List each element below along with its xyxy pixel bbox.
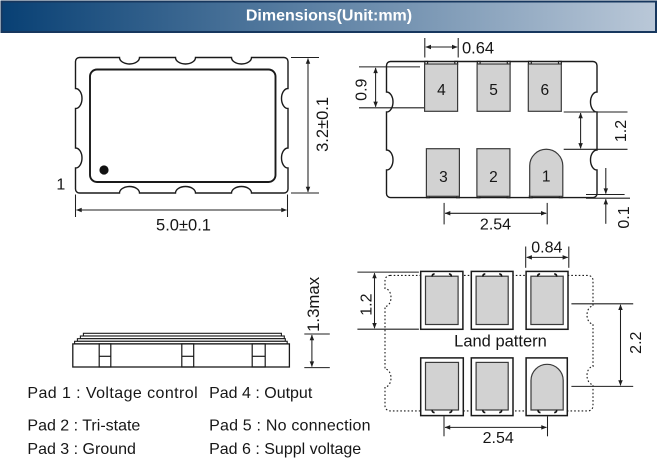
svg-text:Pad 2 : Tri-state: Pad 2 : Tri-state bbox=[27, 417, 140, 434]
svg-text:5: 5 bbox=[489, 82, 498, 99]
svg-text:2.2: 2.2 bbox=[628, 331, 645, 353]
svg-text:1.3max: 1.3max bbox=[304, 276, 323, 332]
svg-text:Pad 4 : Output: Pad 4 : Output bbox=[209, 385, 313, 402]
svg-text:4: 4 bbox=[437, 82, 446, 99]
svg-text:6: 6 bbox=[540, 82, 549, 99]
svg-text:2.54: 2.54 bbox=[480, 217, 511, 234]
svg-text:5.0±0.1: 5.0±0.1 bbox=[156, 216, 211, 234]
svg-text:Pad 1 : Voltage control: Pad 1 : Voltage control bbox=[27, 385, 198, 402]
svg-text:0.1: 0.1 bbox=[616, 206, 633, 228]
svg-text:1: 1 bbox=[542, 169, 551, 186]
svg-text:1.2: 1.2 bbox=[359, 293, 376, 315]
svg-text:Pad 5 : No connection: Pad 5 : No connection bbox=[209, 417, 371, 434]
svg-text:0.64: 0.64 bbox=[462, 39, 494, 57]
svg-text:Pad 6 : Suppl voltage: Pad 6 : Suppl voltage bbox=[209, 441, 361, 458]
svg-text:2.54: 2.54 bbox=[483, 430, 514, 447]
svg-text:1: 1 bbox=[56, 177, 65, 194]
svg-text:0.84: 0.84 bbox=[531, 240, 562, 257]
svg-text:3: 3 bbox=[439, 169, 448, 186]
svg-text:3.2±0.1: 3.2±0.1 bbox=[314, 97, 332, 152]
svg-text:2: 2 bbox=[489, 169, 498, 186]
svg-text:Pad 3 : Ground: Pad 3 : Ground bbox=[27, 441, 136, 458]
svg-text:0.9: 0.9 bbox=[354, 78, 371, 100]
svg-text:1.2: 1.2 bbox=[613, 120, 630, 142]
svg-text:Land pattern: Land pattern bbox=[454, 333, 547, 351]
svg-text:Dimensions(Unit:mm): Dimensions(Unit:mm) bbox=[246, 7, 412, 24]
